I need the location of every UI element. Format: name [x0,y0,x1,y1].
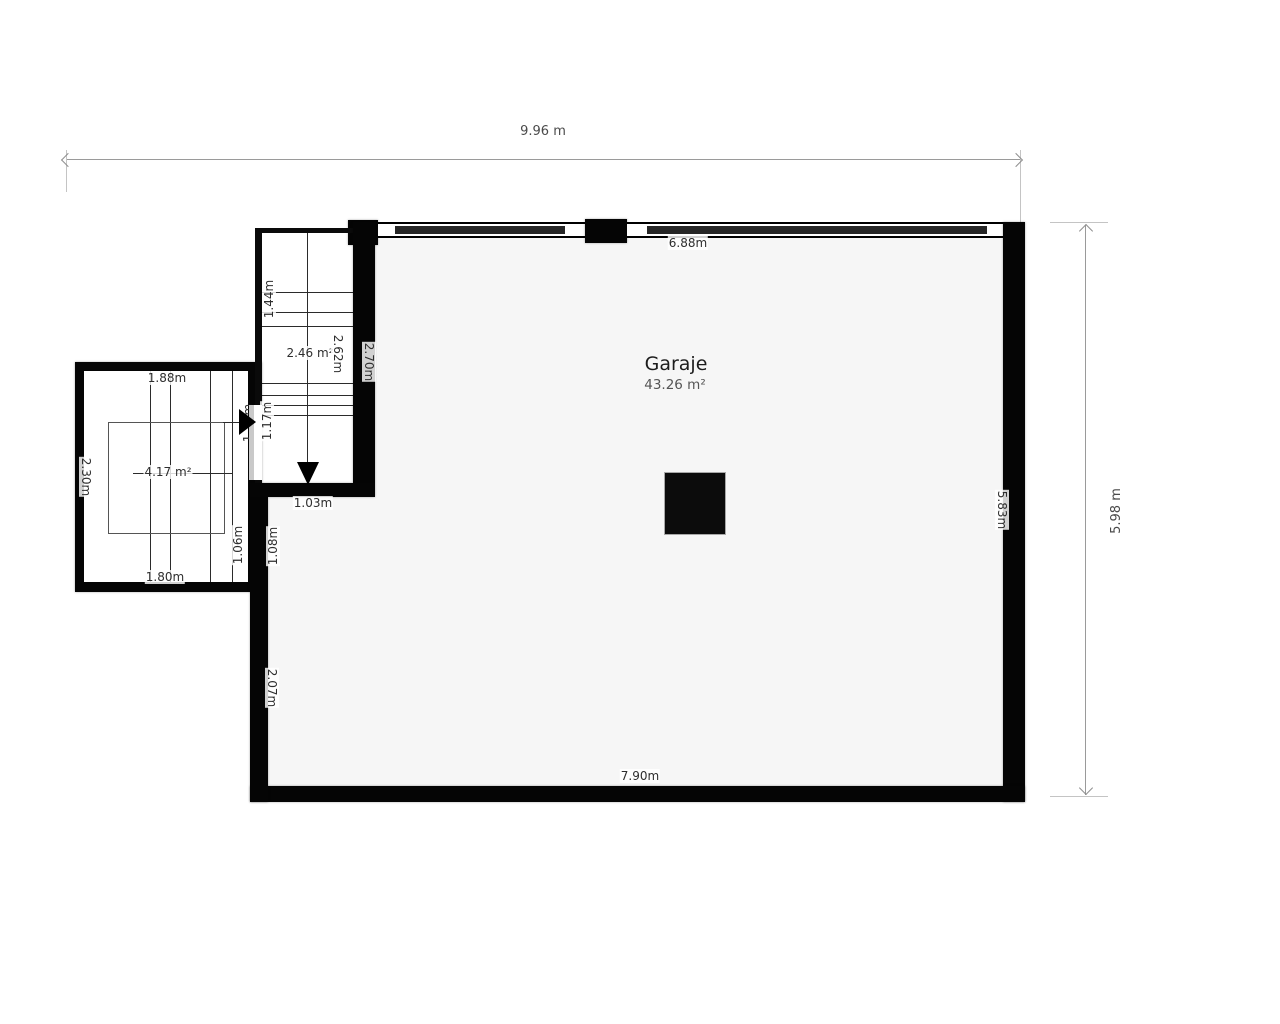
dim-label-left-segment-inner: 1.08m [266,526,280,566]
wall-bottom [250,786,1025,802]
dim-label-flight-upper: 1.44m [262,279,276,319]
dim-label-top-window-span: 6.88m [668,236,708,250]
dim-label-right-wall: 5.83m [995,490,1009,530]
dim-label-box-top: 1.88m [147,371,187,385]
dim-label-box-bottom: 1.80m [145,570,185,584]
arrow-down-icon [1079,781,1093,795]
stair-direction-line [223,422,240,423]
dim-label-box-right-segment: 1.06m [231,525,245,565]
wall-top-segment [565,222,585,238]
wall-corridor-bottom [250,483,375,497]
dim-label-overall-height: 5.98 m [1110,487,1124,535]
dimension-tick [1050,796,1108,797]
dim-label-corridor-wall: 2.70m [362,342,376,382]
dim-label-corridor-width: 1.03m [293,496,333,510]
room-title: Garaje [644,357,709,371]
dim-label-bottom: 7.90m [620,769,660,783]
wall-corridor-top [255,228,355,233]
arrow-up-icon [1079,224,1093,238]
box-area-label: 4.17 m² [143,465,192,479]
stair-arrow-right-icon [239,409,256,435]
corridor-area-label: 2.46 m² [285,346,334,360]
wall-top-segment [987,222,1003,238]
dim-label-overall-width: 9.96 m [519,125,567,139]
floor-plan: 9.96 m 5.98 m 1.17m G [0,0,1280,1024]
dimension-line-top [67,159,1020,160]
wall-top-segment [627,222,647,238]
dimension-tick [1050,222,1108,223]
dim-label-left-lower: 2.07m [265,668,279,708]
door-top-block [585,219,627,243]
dimension-line-right [1085,225,1086,795]
room-area: 43.26 m² [643,378,707,392]
wall-top-segment [378,222,395,238]
dim-label-flight-lower: 1.17m [260,401,274,441]
stair-arrow-down-icon [297,462,319,485]
pillar [664,472,726,535]
dim-label-box-left: 2.30m [79,457,93,497]
garage-floor [265,236,1005,788]
dim-label-corridor-length: 2.62m [331,334,345,374]
arrow-left-icon [61,153,75,167]
window-top-left [395,222,565,238]
